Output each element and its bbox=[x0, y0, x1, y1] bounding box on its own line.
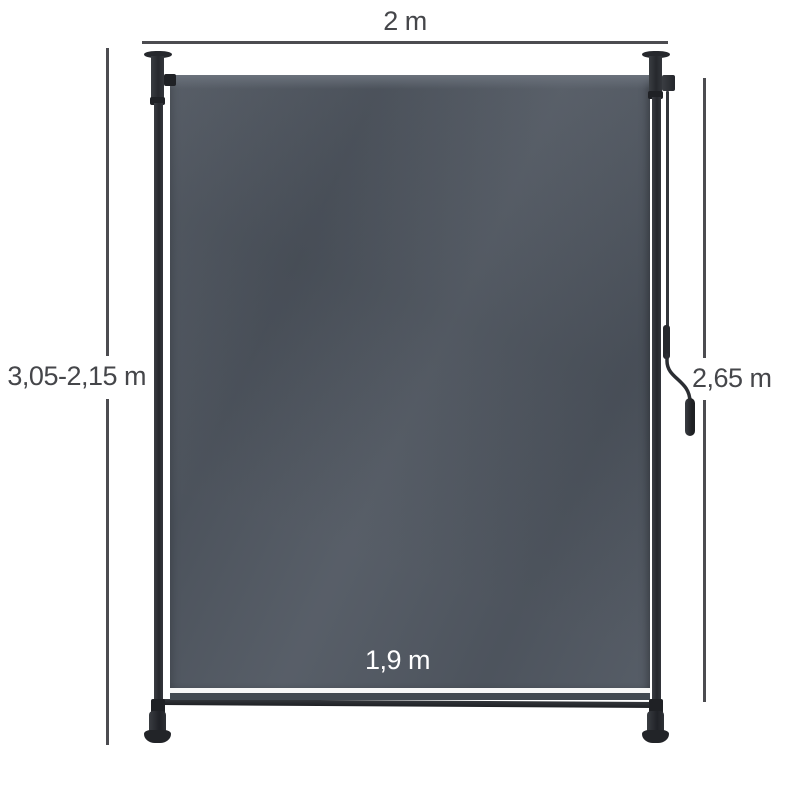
left-fabric-bracket bbox=[164, 74, 176, 86]
right-pole-upper-tube bbox=[649, 56, 662, 96]
left-pole bbox=[154, 103, 163, 715]
crank-rod bbox=[666, 91, 669, 329]
dimension-line-top bbox=[142, 41, 668, 44]
dimension-line-left-lower bbox=[106, 399, 109, 745]
fabric-roller-highlight bbox=[170, 75, 650, 89]
crank-handle bbox=[685, 398, 695, 436]
dimension-line-right-lower bbox=[703, 400, 706, 702]
dimension-label-top-width: 2 m bbox=[142, 5, 668, 38]
dimension-label-right-height: 2,65 m bbox=[692, 362, 772, 395]
dimension-label-left-height: 3,05-2,15 m bbox=[0, 360, 146, 393]
crank-gearbox bbox=[662, 75, 675, 91]
fabric-width-label: 1,9 m bbox=[300, 644, 495, 677]
fabric-hem bbox=[170, 693, 650, 700]
dimension-line-right-upper bbox=[703, 78, 706, 358]
fabric-panel bbox=[170, 75, 650, 688]
left-foot-base bbox=[144, 730, 171, 743]
left-pole-upper-tube bbox=[151, 56, 164, 102]
bottom-bar bbox=[159, 699, 659, 708]
right-foot-base bbox=[642, 730, 669, 743]
dimension-line-left-upper bbox=[106, 48, 109, 356]
product-dimension-diagram: 2 m 3,05-2,15 m 2,65 m 1,9 m bbox=[0, 0, 800, 800]
